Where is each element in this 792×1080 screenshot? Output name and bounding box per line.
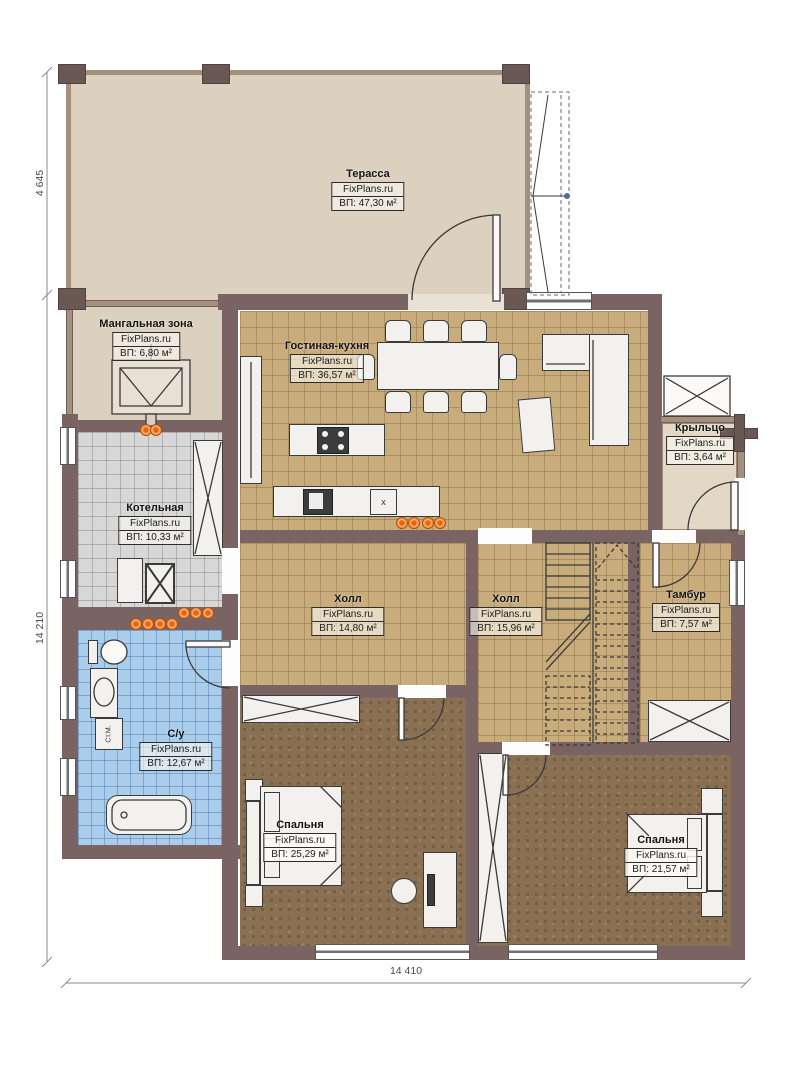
window [526,292,592,310]
dimension-left-top: 4 645 [34,170,46,196]
dining-chair [461,391,487,413]
boiler-unit [117,558,143,603]
wardrobe [242,695,360,723]
window [729,560,745,606]
wall-segment [222,310,238,960]
room-terrace [66,70,530,310]
area-value: ВП: 12,67 м² [140,757,211,770]
chimney-marker [734,414,745,452]
room-label-living-kitchen: Гостиная-кухня FixPlans.ru ВП: 36,57 м² [285,340,369,383]
wardrobe [648,700,731,742]
dining-chair [461,320,487,342]
dining-chair [499,354,517,380]
tambour-door-opening [652,530,696,543]
brand-watermark: FixPlans.ru [312,608,383,622]
bedroom-left-door-opening [398,685,446,698]
room-label-bedroom-right: Спальня FixPlans.ru ВП: 21,57 м² [624,834,697,877]
brand-watermark: FixPlans.ru [291,355,362,369]
window [508,944,658,960]
brand-watermark: FixPlans.ru [625,849,696,863]
wall-segment [66,300,222,307]
area-value: ВП: 15,96 м² [470,622,541,635]
area-value: ВП: 47,30 м² [332,197,403,210]
room-label-tambour: Тамбур FixPlans.ru ВП: 7,57 м² [652,589,720,632]
bed-headboard [707,814,723,891]
wall-segment [228,946,745,960]
coffee-table [518,397,556,454]
boiler-cabinet [193,440,223,556]
wall-segment [628,543,640,755]
bed-headboard [246,801,260,885]
area-value: ВП: 10,33 м² [119,531,190,544]
room-label-terrace: Терасса FixPlans.ru ВП: 47,30 м² [331,168,404,211]
area-value: ВП: 3,64 м² [667,451,733,464]
room-hall-2 [478,543,628,755]
exterior-stair [531,92,570,295]
toilet [88,640,98,664]
room-label-porch: Крыльцо FixPlans.ru ВП: 3,64 м² [666,422,734,465]
area-value: ВП: 7,57 м² [653,618,719,631]
bedroom-right-door-opening [502,742,550,755]
dining-chair [423,391,449,413]
brand-watermark: FixPlans.ru [140,743,211,757]
brand-watermark: FixPlans.ru [119,517,190,531]
room-label-hall-1: Холл FixPlans.ru ВП: 14,80 м² [311,593,384,636]
desk-chair [391,878,417,904]
boiler-door-opening [222,548,238,594]
dishwasher-mark: x [381,497,386,507]
area-value: ВП: 36,57 м² [291,369,362,382]
nightstand [245,885,263,907]
window [315,944,470,960]
brand-watermark: FixPlans.ru [653,604,719,618]
terrace-post [58,288,86,310]
dining-table [377,342,499,390]
wall-segment [78,607,222,630]
dining-chair [385,320,411,342]
room-label-hall-2: Холл FixPlans.ru ВП: 15,96 м² [469,593,542,636]
kitchen-sink [303,489,333,515]
vanity-sink [90,668,118,718]
dishwasher: x [370,489,397,515]
window [60,427,76,465]
wardrobe [478,753,508,943]
area-value: ВП: 14,80 м² [312,622,383,635]
terrace-post [502,64,530,84]
floor-plan-sheet: x Ст.М. [0,0,792,1080]
room-label-boiler: Котельная FixPlans.ru ВП: 10,33 м² [118,502,191,545]
terrace-post [58,64,86,84]
bathtub [106,795,192,835]
brand-watermark: FixPlans.ru [667,437,733,451]
brand-watermark: FixPlans.ru [332,183,403,197]
wall-segment [62,845,240,859]
equipment-box [145,563,175,604]
area-value: ВП: 25,29 м² [264,848,335,861]
sofa [589,334,629,446]
window [60,758,76,796]
dining-chair [385,391,411,413]
terrace-post [202,64,230,84]
dimension-left-side: 14 210 [34,612,46,644]
brand-watermark: FixPlans.ru [264,834,335,848]
terrace-door-opening [408,294,504,310]
porch-stair [664,376,730,416]
brand-watermark: FixPlans.ru [113,333,179,347]
washing-machine-label: Ст.М. [106,725,113,742]
area-value: ВП: 21,57 м² [625,863,696,876]
dimension-bottom: 14 410 [390,965,422,977]
window [60,686,76,720]
window [60,560,76,598]
room-label-bathroom: С/у FixPlans.ru ВП: 12,67 м² [139,728,212,771]
area-value: ВП: 6,80 м² [113,347,179,360]
tv-unit [240,356,262,484]
kitchen-counter [273,486,440,517]
nightstand [701,891,723,917]
passage-kitchen-hall [478,528,532,544]
room-label-bedroom-left: Спальня FixPlans.ru ВП: 25,29 м² [263,819,336,862]
wall-segment [240,530,640,543]
entrance-door-opening [735,478,747,530]
brand-watermark: FixPlans.ru [470,608,541,622]
room-label-bbq: Мангальная зона FixPlans.ru ВП: 6,80 м² [99,318,192,361]
cooktop [317,427,349,454]
bathroom-door-opening [222,640,238,686]
wall-segment [66,306,73,420]
wall-segment [466,685,478,960]
monitor [427,874,435,906]
nightstand [701,788,723,814]
wall-segment [62,420,222,432]
dining-chair [423,320,449,342]
